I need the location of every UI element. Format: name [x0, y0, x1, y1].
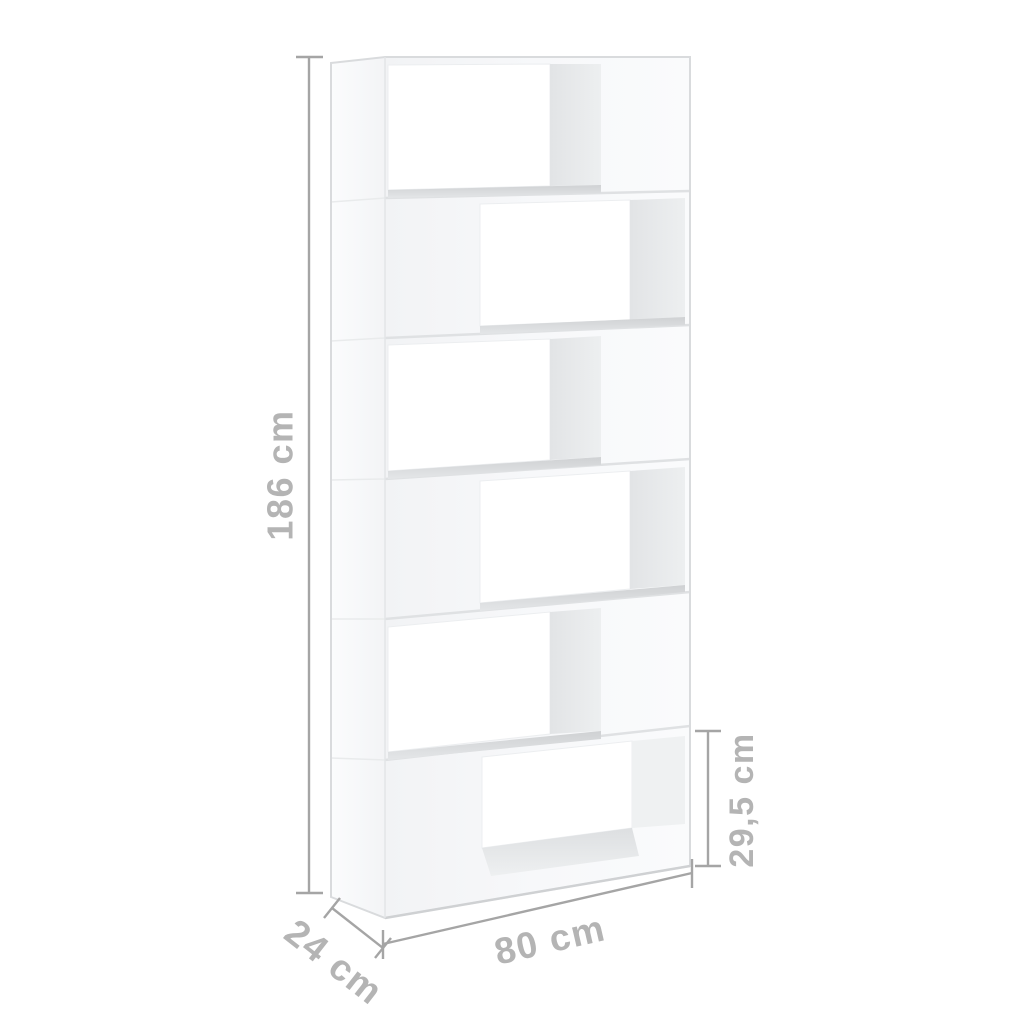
compartment-dimension-label: 29,5 cm	[723, 732, 761, 867]
left-shelf-line-3	[331, 479, 385, 480]
row-3-opening	[388, 339, 550, 471]
row-5-opening	[388, 612, 550, 752]
compartment-height-dimension: 29,5 cm	[695, 731, 761, 868]
row-5-divider-side	[550, 608, 601, 734]
row-6-divider-side	[632, 736, 685, 828]
bookcase-left-side-panel	[331, 57, 385, 918]
row-2-divider-side	[630, 198, 685, 320]
row-1-opening	[388, 64, 550, 190]
depth-dimension: 24 cm	[277, 898, 391, 1013]
compartment-row-3	[388, 336, 601, 479]
row-4-divider-side	[630, 467, 685, 589]
depth-dimension-label: 24 cm	[277, 911, 391, 1013]
row-1-divider-side	[550, 64, 601, 186]
row-3-divider-side	[550, 336, 601, 460]
row-4-opening	[480, 471, 630, 603]
bookcase	[331, 57, 690, 918]
height-dimension: 186 cm	[260, 57, 324, 893]
height-dimension-label: 186 cm	[260, 409, 301, 540]
row-2-opening	[480, 200, 630, 326]
compartment-row-5	[388, 608, 601, 760]
bookcase-diagram-canvas: 186 cm 29,5 cm 80 cm 24 cm	[0, 0, 1024, 1024]
compartment-row-4	[480, 467, 685, 611]
depth-dimension-tick-back	[324, 898, 340, 918]
compartment-row-2	[480, 198, 685, 334]
product-dimension-image: 186 cm 29,5 cm 80 cm 24 cm	[0, 0, 1024, 1024]
width-dimension-label: 80 cm	[491, 907, 610, 972]
compartment-row-1	[388, 64, 601, 198]
